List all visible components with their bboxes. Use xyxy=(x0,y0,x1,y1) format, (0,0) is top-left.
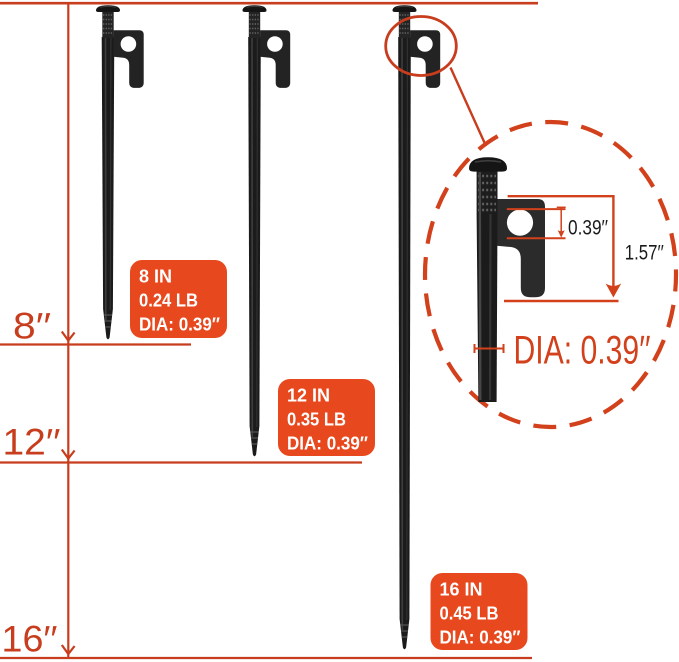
svg-text:16′′: 16′′ xyxy=(2,618,58,660)
svg-text:DIA: 0.39′′: DIA: 0.39′′ xyxy=(440,628,521,648)
svg-text:DIA: 0.39′′: DIA: 0.39′′ xyxy=(514,328,651,372)
svg-text:DIA: 0.39′′: DIA: 0.39′′ xyxy=(139,315,220,335)
svg-text:8 IN: 8 IN xyxy=(139,267,172,287)
svg-text:8′′: 8′′ xyxy=(13,305,51,347)
svg-text:12′′: 12′′ xyxy=(3,421,61,463)
svg-text:0.24 LB: 0.24 LB xyxy=(139,291,198,311)
svg-text:0.45 LB: 0.45 LB xyxy=(440,604,499,624)
svg-text:0.39′′: 0.39′′ xyxy=(568,217,608,240)
svg-text:12 IN: 12 IN xyxy=(287,386,330,406)
svg-text:0.35 LB: 0.35 LB xyxy=(287,410,346,430)
svg-text:16 IN: 16 IN xyxy=(440,580,483,600)
svg-text:1.57′′: 1.57′′ xyxy=(625,242,664,265)
svg-text:DIA: 0.39′′: DIA: 0.39′′ xyxy=(287,434,368,454)
